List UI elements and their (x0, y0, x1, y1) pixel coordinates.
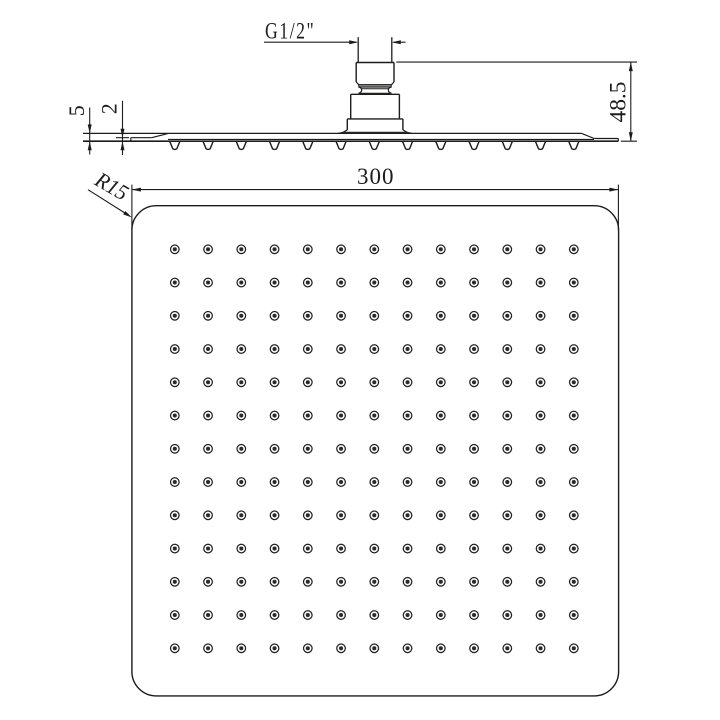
svg-text:2: 2 (97, 103, 122, 114)
svg-text:5: 5 (64, 105, 89, 116)
svg-text:300: 300 (357, 164, 395, 189)
svg-text:G1/2": G1/2" (265, 19, 315, 44)
svg-text:48.5: 48.5 (606, 82, 631, 123)
